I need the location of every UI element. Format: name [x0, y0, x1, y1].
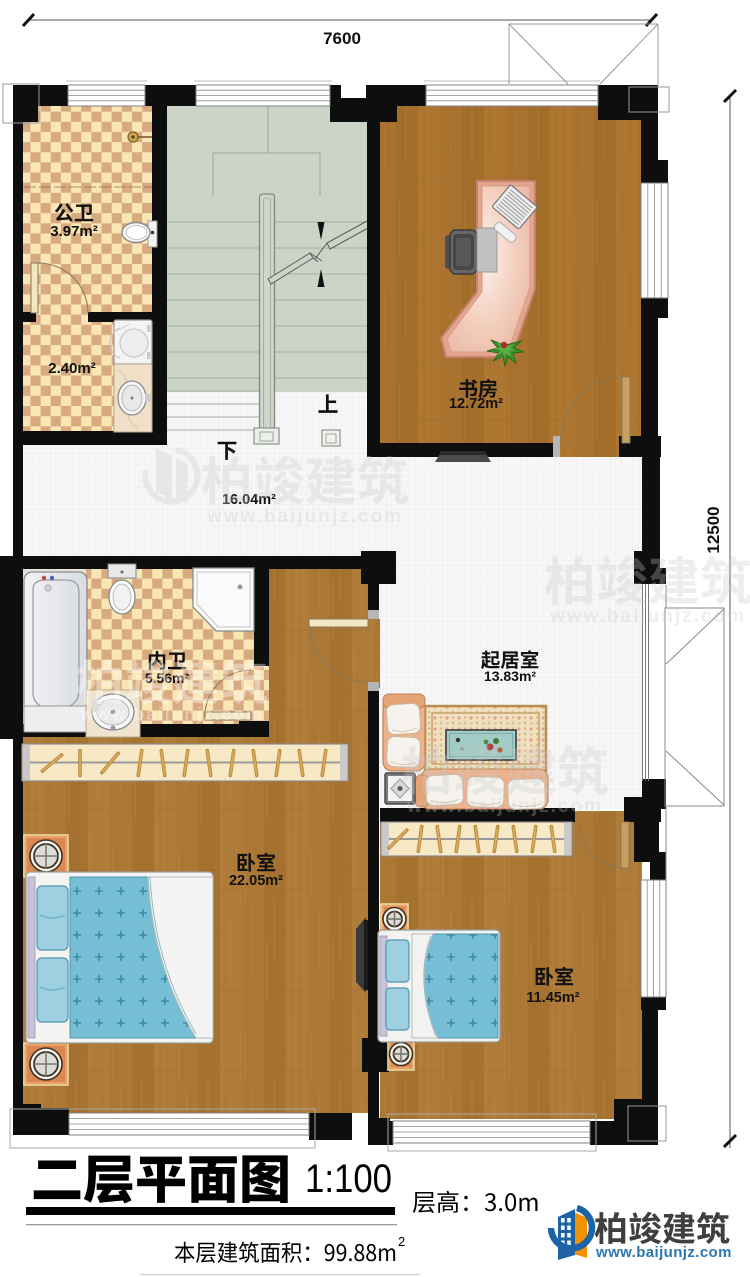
svg-text:3.97m²: 3.97m²: [50, 223, 98, 240]
svg-text:11.45m²: 11.45m²: [526, 990, 579, 1006]
svg-text:7600: 7600: [323, 29, 361, 48]
svg-text:13.83m²: 13.83m²: [484, 668, 536, 684]
svg-text:www.baijunjz.com: www.baijunjz.com: [206, 506, 403, 527]
svg-text:2: 2: [398, 1234, 405, 1249]
svg-text:12500: 12500: [704, 506, 723, 553]
svg-text:www.baijunjz.com: www.baijunjz.com: [406, 796, 603, 817]
svg-text:www.baijunjz.com: www.baijunjz.com: [549, 606, 746, 627]
svg-text:1:100: 1:100: [305, 1157, 392, 1201]
svg-text:2.40m²: 2.40m²: [48, 360, 96, 377]
svg-text:www.baijunjz.com: www.baijunjz.com: [595, 1244, 732, 1261]
svg-text:12.72m²: 12.72m²: [449, 396, 503, 412]
svg-text:22.05m²: 22.05m²: [229, 873, 283, 889]
svg-text:www.baijunjz.com: www.baijunjz.com: [80, 704, 264, 724]
